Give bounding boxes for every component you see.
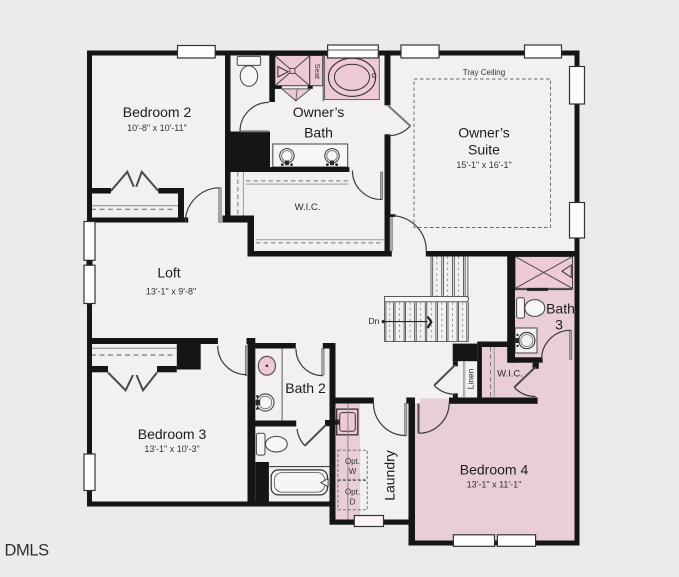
svg-text:Seat: Seat — [313, 64, 322, 80]
svg-text:Bedroom 4: Bedroom 4 — [460, 462, 529, 478]
svg-text:W.I.C.: W.I.C. — [295, 202, 321, 213]
svg-text:Owner’s: Owner’s — [458, 125, 510, 141]
svg-text:15'-1" x 16'-1": 15'-1" x 16'-1" — [456, 160, 511, 170]
svg-text:13'-1" x 9'-8": 13'-1" x 9'-8" — [146, 287, 196, 297]
svg-text:Linen: Linen — [466, 368, 476, 389]
svg-text:Dn: Dn — [369, 316, 380, 326]
svg-text:Loft: Loft — [157, 265, 180, 281]
svg-text:W: W — [349, 467, 357, 476]
svg-text:D: D — [350, 498, 356, 507]
svg-text:Bedroom 3: Bedroom 3 — [138, 426, 207, 442]
svg-text:Suite: Suite — [468, 142, 500, 158]
svg-text:10'-8" x 10'-11": 10'-8" x 10'-11" — [127, 123, 187, 133]
svg-text:Bath: Bath — [304, 125, 333, 141]
svg-text:Bath 2: Bath 2 — [285, 380, 326, 396]
svg-text:Tray Ceiling: Tray Ceiling — [463, 68, 505, 77]
svg-text:3: 3 — [555, 317, 563, 333]
svg-text:Opt.: Opt. — [345, 457, 360, 466]
svg-text:Owner’s: Owner’s — [293, 104, 345, 120]
svg-text:DMLS: DMLS — [5, 542, 50, 560]
svg-text:Bath: Bath — [546, 301, 575, 317]
svg-text:Laundry: Laundry — [382, 450, 398, 501]
svg-text:W.I.C.: W.I.C. — [497, 369, 523, 380]
svg-text:13'-1" x 10'-3": 13'-1" x 10'-3" — [144, 444, 199, 454]
svg-text:13'-1" x 11'-1": 13'-1" x 11'-1" — [467, 480, 522, 490]
svg-text:Opt.: Opt. — [345, 488, 360, 497]
svg-text:Bedroom 2: Bedroom 2 — [123, 104, 192, 120]
